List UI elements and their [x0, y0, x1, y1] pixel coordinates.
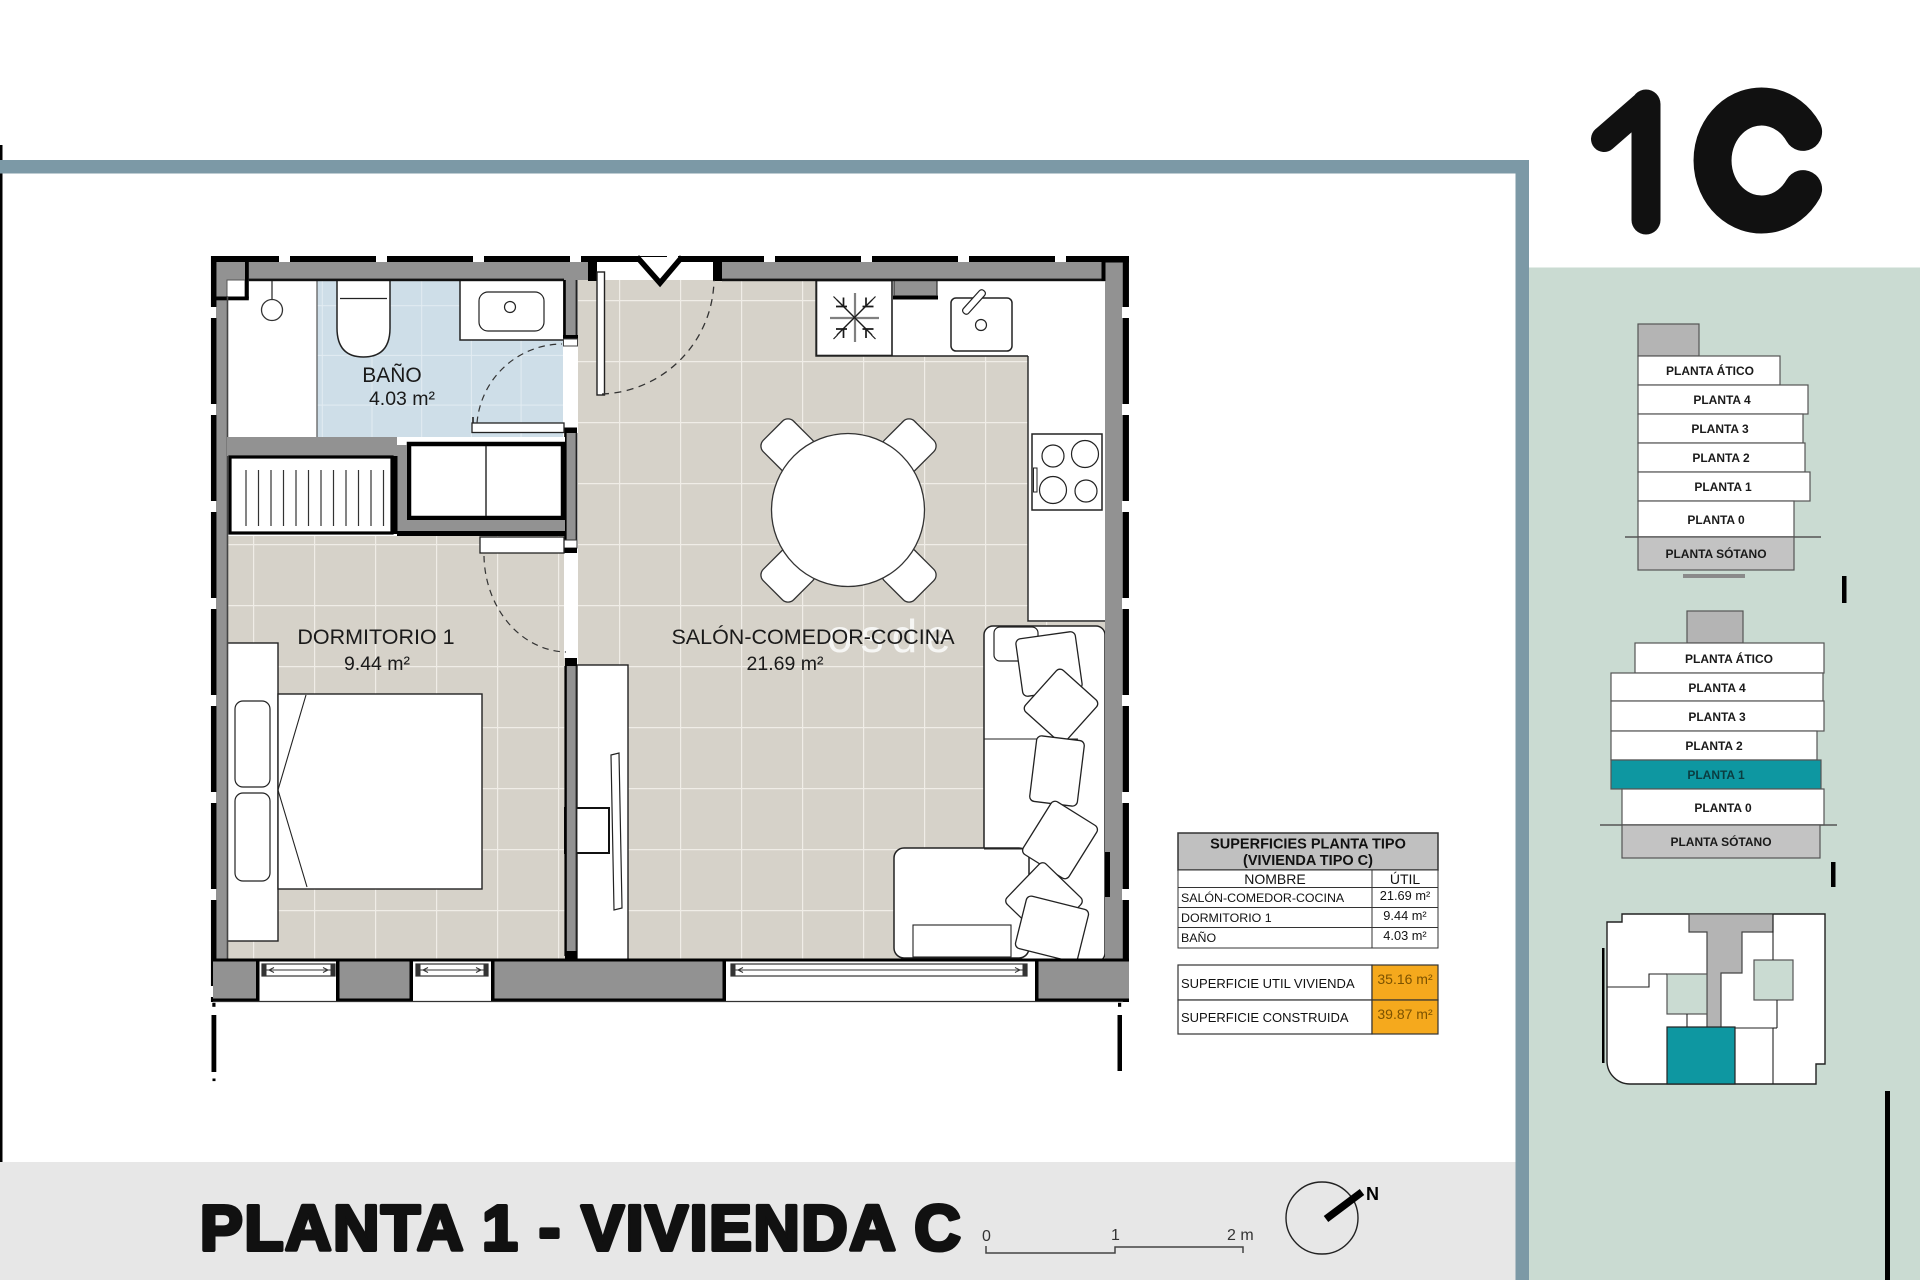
svg-text:9.44 m²: 9.44 m²: [1383, 908, 1427, 923]
svg-text:1: 1: [1111, 1227, 1120, 1244]
svg-text:0: 0: [982, 1228, 991, 1245]
svg-text:PLANTA 2: PLANTA 2: [1685, 739, 1743, 753]
svg-text:BAÑO: BAÑO: [362, 363, 422, 387]
svg-text:PLANTA 4: PLANTA 4: [1688, 681, 1746, 695]
svg-text:PLANTA 4: PLANTA 4: [1693, 393, 1751, 407]
svg-text:39.87 m²: 39.87 m²: [1377, 1006, 1433, 1022]
svg-text:PLANTA 1: PLANTA 1: [1687, 768, 1745, 782]
svg-text:2 m: 2 m: [1227, 1227, 1254, 1244]
svg-text:SUPERFICIES PLANTA TIPO: SUPERFICIES PLANTA TIPO: [1210, 837, 1406, 853]
svg-text:PLANTA SÓTANO: PLANTA SÓTANO: [1665, 546, 1766, 561]
svg-text:BAÑO: BAÑO: [1181, 931, 1216, 945]
svg-text:PLANTA ÁTICO: PLANTA ÁTICO: [1666, 363, 1754, 378]
svg-text:PLANTA 2: PLANTA 2: [1692, 451, 1750, 465]
svg-text:DORMITORIO 1: DORMITORIO 1: [1181, 911, 1272, 925]
svg-text:PLANTA ÁTICO: PLANTA ÁTICO: [1685, 651, 1773, 666]
svg-text:PLANTA 0: PLANTA 0: [1687, 513, 1745, 527]
svg-text:(VIVIENDA TIPO C): (VIVIENDA TIPO C): [1243, 853, 1373, 869]
svg-text:35.16 m²: 35.16 m²: [1377, 971, 1433, 987]
svg-text:4.03 m²: 4.03 m²: [1383, 928, 1427, 943]
svg-text:21.69 m²: 21.69 m²: [747, 653, 824, 675]
svg-text:4.03 m²: 4.03 m²: [369, 388, 436, 410]
svg-text:PLANTA 1 - VIVIENDA C: PLANTA 1 - VIVIENDA C: [200, 1192, 962, 1264]
svg-text:SUPERFICIE CONSTRUIDA: SUPERFICIE CONSTRUIDA: [1181, 1010, 1349, 1025]
svg-text:NOMBRE: NOMBRE: [1244, 871, 1305, 887]
svg-text:N: N: [1366, 1184, 1379, 1204]
svg-text:ÚTIL: ÚTIL: [1390, 871, 1421, 887]
svg-text:SALÓN-COMEDOR-COCINA: SALÓN-COMEDOR-COCINA: [1181, 890, 1345, 905]
svg-text:PLANTA 3: PLANTA 3: [1688, 710, 1746, 724]
svg-text:SALÓN-COMEDOR-COCINA: SALÓN-COMEDOR-COCINA: [671, 624, 955, 649]
svg-text:PLANTA SÓTANO: PLANTA SÓTANO: [1670, 834, 1771, 849]
svg-text:PLANTA 0: PLANTA 0: [1694, 801, 1752, 815]
svg-text:DORMITORIO 1: DORMITORIO 1: [297, 625, 454, 649]
svg-text:21.69 m²: 21.69 m²: [1380, 888, 1431, 903]
svg-text:PLANTA 1: PLANTA 1: [1694, 480, 1752, 494]
svg-text:9.44 m²: 9.44 m²: [344, 653, 411, 675]
svg-text:SUPERFICIE UTIL VIVIENDA: SUPERFICIE UTIL VIVIENDA: [1181, 976, 1355, 991]
svg-text:PLANTA 3: PLANTA 3: [1691, 422, 1749, 436]
